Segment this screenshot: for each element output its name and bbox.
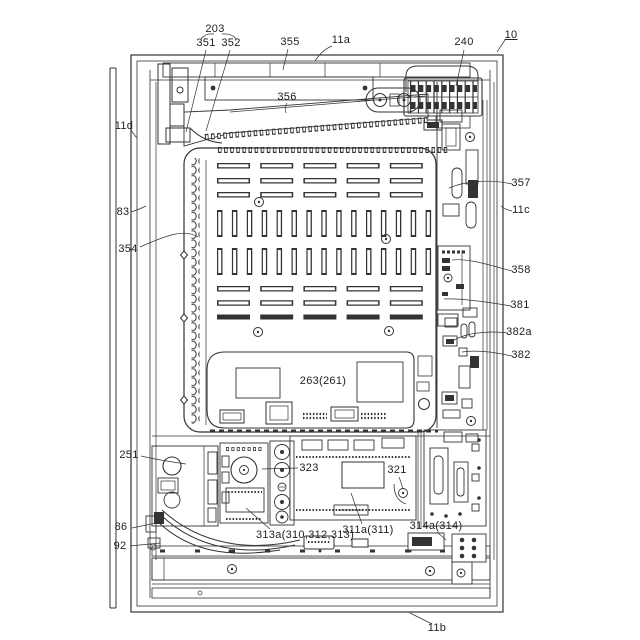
ref-label-92: 92 [114,540,127,552]
ref-label-356: 356 [277,91,296,103]
ref-label-382a: 382a [506,326,532,338]
vent-slots [217,166,433,337]
right-bracket [424,430,486,526]
ref-label-381: 381 [510,299,529,311]
ref-label-83: 83 [117,206,130,218]
ref-label-358: 358 [511,264,530,276]
ref-label-86: 86 [115,521,128,533]
ref-label-10: 10 [505,29,518,41]
ref-label-357: 357 [511,177,530,189]
ref-label-11a: 11a [332,34,350,46]
ref-label-382: 382 [511,349,530,361]
ref-label-354: 354 [118,243,137,255]
ref-label-263: 263(261) [300,375,346,387]
ref-label-203: 203 [205,23,224,35]
ref-label-351: 351 [196,37,215,49]
ref-label-240: 240 [454,36,473,48]
right-rail-components [437,82,487,430]
ref-label-313a: 313a(310,312,313) [256,529,354,541]
bottom-rails [152,546,490,598]
ref-label-314a: 314a(314) [410,520,463,532]
ref-label-352: 352 [221,37,240,49]
ref-label-11b: 11b [428,622,446,634]
ref-label-323: 323 [299,462,318,474]
mount-bracket [408,533,486,584]
ref-label-355: 355 [280,36,299,48]
top-crossbar [163,63,470,77]
hinge-parts [158,64,222,144]
main-pcb [290,430,421,528]
patent-figure: 203 351 352 355 356 11a 240 10 11d 83 35… [0,0,640,640]
ref-label-251: 251 [119,449,138,461]
left-io-board [146,446,218,550]
ref-label-11c: 11c [512,204,530,216]
coil-board [220,443,268,523]
ref-label-321: 321 [387,464,406,476]
ref-label-311a: 311a(311) [342,524,393,536]
shield-box [207,352,438,431]
ref-label-11d: 11d [115,120,133,132]
patent-drawing [0,0,640,640]
